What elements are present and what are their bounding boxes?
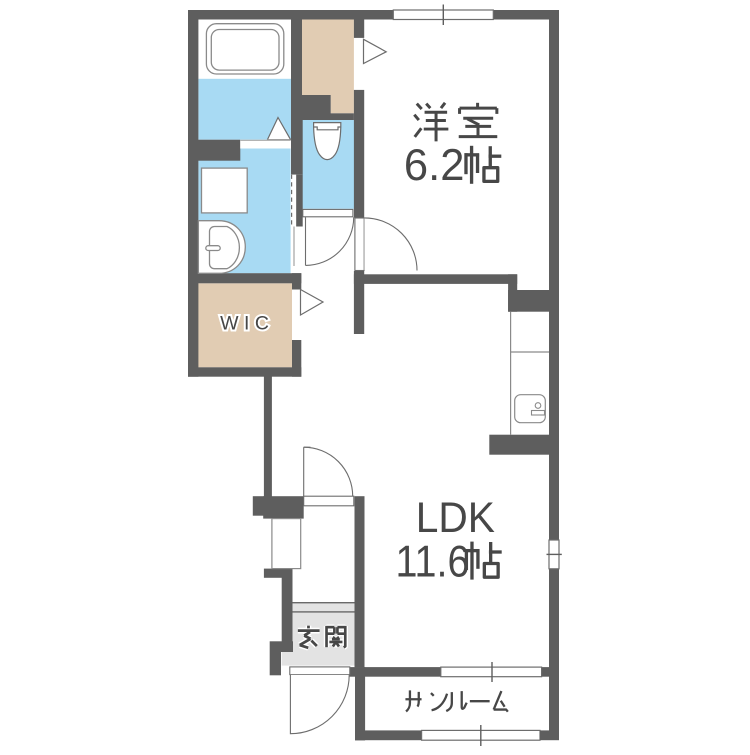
svg-text:LDK: LDK [416, 493, 495, 541]
svg-text:6.2: 6.2 [404, 141, 465, 190]
svg-text:WIC: WIC [220, 313, 274, 335]
svg-text:11.6: 11.6 [396, 536, 470, 586]
